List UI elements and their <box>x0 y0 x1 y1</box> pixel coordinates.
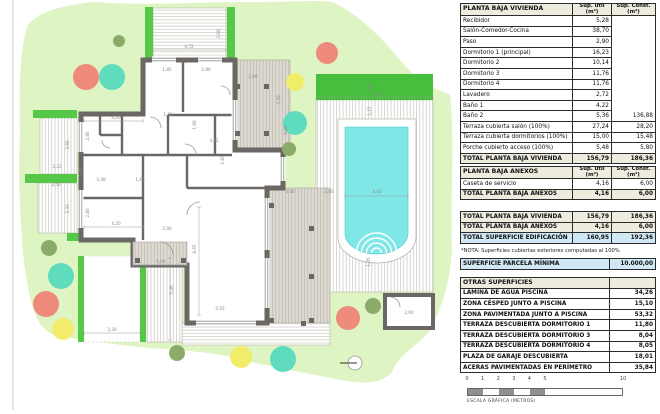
area-tables-panel: PLANTA BAJA VIVIENDASup. útil(m²)Sup. Co… <box>458 0 657 410</box>
row-label: Lavadero <box>461 90 573 101</box>
table-row: TERRAZA DESCUBIERTA DORMITORIO 111,80 <box>461 320 656 331</box>
area-table: PLANTA BAJA ANEXOSSup. útil(m²)Sup. Cons… <box>460 166 656 200</box>
dimension-label: 5,00 <box>156 259 166 264</box>
scale-bar <box>467 388 623 396</box>
scale-number: 10 <box>620 376 626 382</box>
sup-util-value: 5,36 <box>573 111 612 122</box>
row-label: Paso <box>461 37 573 48</box>
dimension-label: 4,20 <box>111 221 121 226</box>
tree-salmon <box>336 306 360 330</box>
area-value: 35,84 <box>610 362 656 373</box>
row-label: ACERAS PAVIMENTADAS EN PERÍMETRO <box>461 362 610 373</box>
dimension-label: 1,85 <box>162 67 172 72</box>
table-row: TERRAZA DESCUBIERTA DORMITORIO 48,05 <box>461 341 656 352</box>
total-const-value: 186,36 <box>612 153 656 164</box>
sup-util-value: 2,72 <box>573 90 612 101</box>
row-label: Caseta de servicio <box>461 179 573 190</box>
table-row: ZONA CÉSPED JUNTO A PISCINA15,10 <box>461 299 656 310</box>
area-value: 8,04 <box>610 330 656 341</box>
dimension-label: 1,60 <box>192 120 197 130</box>
table-row: TOTAL PLANTA BAJA ANEXOS4,166,00 <box>461 189 656 200</box>
total-util-value: 156,79 <box>573 212 612 223</box>
sup-util-value: 27,24 <box>573 122 612 133</box>
sup-const-value <box>612 100 656 111</box>
sup-const-value: 28,20 <box>612 122 656 133</box>
row-label: Baño 2 <box>461 111 573 122</box>
row-label: PLAZA DE GARAJE DESCUBIERTA <box>461 352 610 363</box>
scale-number: 1 <box>481 376 484 382</box>
total-const-value: 6,00 <box>612 222 656 233</box>
table-otras-superficies: OTRAS SUPERFICIESLÁMINA DE AGUA PISCINA3… <box>460 277 655 373</box>
dimension-label: 4,00 <box>372 189 382 194</box>
dimension-label: 3,00 <box>285 189 295 194</box>
hedge <box>227 7 235 60</box>
dimension-label: 3,62 <box>209 138 219 143</box>
total-label: TOTAL PLANTA BAJA ANEXOS <box>461 222 573 233</box>
table-row: Paso2,90 <box>461 37 656 48</box>
sup-util-value: 10,14 <box>573 58 612 69</box>
scale-number: 3 <box>512 376 515 382</box>
table-row: LÁMINA DE AGUA PISCINA34,26 <box>461 288 656 299</box>
table-planta-baja-vivienda: PLANTA BAJA VIVIENDASup. útil(m²)Sup. Co… <box>460 3 655 164</box>
total-const-value: 192,36 <box>612 233 656 244</box>
table-row: Porche cubierto acceso (100%)5,485,80 <box>461 143 656 154</box>
table-row: TOTAL SUPERFICIE EDIFICACIÓN160,95192,36 <box>461 233 656 244</box>
row-label: TERRAZA DESCUBIERTA DORMITORIO 1 <box>461 320 610 331</box>
sup-const-value <box>612 37 656 48</box>
table-planta-baja-anexos: PLANTA BAJA ANEXOSSup. útil(m²)Sup. Cons… <box>460 166 655 200</box>
sup-const-value <box>612 58 656 69</box>
table-totales: TOTAL PLANTA BAJA VIVIENDA156,79186,36TO… <box>460 211 655 244</box>
table-row: Dormitorio 1 (principal)16,23 <box>461 47 656 58</box>
sup-util-value: 38,70 <box>573 26 612 37</box>
dimension-label: 4,20 <box>111 115 121 120</box>
table-row: Caseta de servicio4,166,00 <box>461 179 656 190</box>
row-label: Dormitorio 3 <box>461 69 573 80</box>
dimension-label: 2,80 <box>85 131 90 141</box>
dimension-label: 2,00 <box>162 226 172 231</box>
table-row: Dormitorio 210,14 <box>461 58 656 69</box>
table-row: Baño 14,22 <box>461 100 656 111</box>
column-header: Sup. Const.(m²) <box>612 4 656 16</box>
row-label: TERRAZA DESCUBIERTA DORMITORIO 4 <box>461 341 610 352</box>
table-row: TOTAL PLANTA BAJA VIVIENDA156,79186,36 <box>461 212 656 223</box>
table-row: PLANTA BAJA ANEXOSSup. útil(m²)Sup. Cons… <box>461 167 656 179</box>
scale-bar-label: ESCALA GRÁFICA (METROS) <box>467 399 536 404</box>
total-label: TOTAL PLANTA BAJA VIVIENDA <box>461 153 573 164</box>
tree-olive <box>169 345 185 361</box>
dimension-label: 4,72 <box>184 44 194 49</box>
table-row: ACERAS PAVIMENTADAS EN PERÍMETRO35,84 <box>461 362 656 373</box>
sup-util-value: 15,00 <box>573 132 612 143</box>
sup-util-value: 4,16 <box>573 179 612 190</box>
sup-const-value: 15,48 <box>612 132 656 143</box>
sup-const-value <box>612 90 656 101</box>
sup-const-value: 6,00 <box>612 179 656 190</box>
table-title: OTRAS SUPERFICIES <box>461 278 610 289</box>
dimension-label: 2,98 <box>248 74 258 79</box>
parcela-value: 10.000,00 <box>610 259 656 270</box>
tree-yellow <box>286 73 304 91</box>
dimension-label: 4,70 <box>276 95 281 105</box>
table-row: Dormitorio 411,76 <box>461 79 656 90</box>
dimension-label: 8,65 <box>192 244 197 254</box>
scale-bar-numbers: 01234510 <box>467 376 637 384</box>
area-value: 34,26 <box>610 288 656 299</box>
sup-util-value: 4,22 <box>573 100 612 111</box>
tree-olive <box>113 35 125 47</box>
tree-olive <box>365 298 381 314</box>
table-row: Terraza cubierta dormitorios (100%)15,00… <box>461 132 656 143</box>
table-row: Salón-Comedor-Cocina38,70 <box>461 26 656 37</box>
dimension-label: 5,46 <box>169 285 174 295</box>
site-plan-drawing: 4,722,001,852,802,984,706,001,931,603,62… <box>0 0 455 410</box>
row-label: Salón-Comedor-Cocina <box>461 26 573 37</box>
dimension-label: 6,00 <box>283 125 288 135</box>
area-table: OTRAS SUPERFICIESLÁMINA DE AGUA PISCINA3… <box>460 277 656 373</box>
scale-number: 5 <box>543 376 546 382</box>
table-title: PLANTA BAJA VIVIENDA <box>461 4 573 16</box>
row-label: ZONA CÉSPED JUNTO A PISCINA <box>461 299 610 310</box>
area-value: 11,80 <box>610 320 656 331</box>
tree-olive <box>282 142 296 156</box>
column-header: Sup. útil(m²) <box>573 167 612 179</box>
dimension-label: 2,48 <box>96 177 106 182</box>
dimension-label: 1,93 <box>163 112 173 117</box>
area-table: TOTAL PLANTA BAJA VIVIENDA156,79186,36TO… <box>460 211 656 244</box>
total-util-value: 4,16 <box>573 222 612 233</box>
row-label: Terraza cubierta salón (100%) <box>461 122 573 133</box>
tree-salmon <box>73 64 99 90</box>
dimension-label: 1,70 <box>78 167 83 177</box>
dimension-label: 1,05 <box>366 257 371 267</box>
hedge <box>78 256 84 342</box>
area-table: PLANTA BAJA VIVIENDASup. útil(m²)Sup. Co… <box>460 3 656 164</box>
scale-segment <box>530 389 545 395</box>
sup-const-value <box>612 47 656 58</box>
sup-util-value: 16,23 <box>573 47 612 58</box>
tree-teal <box>270 346 296 372</box>
total-util-value: 4,16 <box>573 189 612 200</box>
row-label: LÁMINA DE AGUA PISCINA <box>461 288 610 299</box>
area-table: SUPERFICIE PARCELA MÍNIMA10.000,00 <box>460 258 656 270</box>
total-label: TOTAL PLANTA BAJA ANEXOS <box>461 189 573 200</box>
sup-util-value: 2,90 <box>573 37 612 48</box>
row-label: Dormitorio 1 (principal) <box>461 47 573 58</box>
note-text: *NOTA: Superficies cubiertas exteriores … <box>461 248 620 254</box>
column-header: Sup. Const.(m²) <box>612 167 656 179</box>
row-label: Dormitorio 2 <box>461 58 573 69</box>
table-row: Recibidor5,28 <box>461 16 656 27</box>
row-label: Dormitorio 4 <box>461 79 573 90</box>
hedge <box>33 110 77 118</box>
tree-teal <box>99 64 125 90</box>
column-header <box>610 278 656 289</box>
area-value: 18,01 <box>610 352 656 363</box>
dimension-label: 7,64 <box>373 92 383 97</box>
table-row: ZONA PAVIMENTADA JUNTO A PISCINA53,32 <box>461 309 656 320</box>
scale-number: 4 <box>528 376 531 382</box>
dimension-label: 2,60 <box>404 310 414 315</box>
site-plan: 4,722,001,852,802,984,706,001,931,603,62… <box>0 0 455 410</box>
sup-util-value: 5,48 <box>573 143 612 154</box>
row-label: TERRAZA DESCUBIERTA DORMITORIO 3 <box>461 330 610 341</box>
area-value: 8,05 <box>610 341 656 352</box>
scale-segment <box>483 389 498 395</box>
table-parcela-minima: SUPERFICIE PARCELA MÍNIMA10.000,00 <box>460 258 655 270</box>
table-row: Baño 25,36136,88 <box>461 111 656 122</box>
dimension-label: 2,50 <box>51 182 61 187</box>
column-header: Sup. útil(m²) <box>573 4 612 16</box>
dimension-label: 1,60 <box>135 177 145 182</box>
dimension-label: 3,60 <box>65 140 70 150</box>
row-label: Porche cubierto acceso (100%) <box>461 143 573 154</box>
parcela-label: SUPERFICIE PARCELA MÍNIMA <box>461 259 610 270</box>
table-row: TOTAL PLANTA BAJA ANEXOS4,166,00 <box>461 222 656 233</box>
table-row: Terraza cubierta salón (100%)27,2428,20 <box>461 122 656 133</box>
dimension-label: 2,00 <box>216 29 221 39</box>
table-row: OTRAS SUPERFICIES <box>461 278 656 289</box>
row-label: Terraza cubierta dormitorios (100%) <box>461 132 573 143</box>
total-util-value: 160,95 <box>573 233 612 244</box>
dimension-label: 3,30 <box>107 327 117 332</box>
dimension-label: 2,85 <box>220 155 225 165</box>
scale-number: 2 <box>497 376 500 382</box>
area-value: 15,10 <box>610 299 656 310</box>
table-row: TOTAL PLANTA BAJA VIVIENDA156,79186,36 <box>461 153 656 164</box>
sup-const-value <box>612 16 656 27</box>
dimension-label: 2,00 <box>367 83 372 93</box>
total-label: TOTAL PLANTA BAJA VIVIENDA <box>461 212 573 223</box>
sup-const-value: 5,80 <box>612 143 656 154</box>
tree-salmon <box>316 42 338 64</box>
row-label: ZONA PAVIMENTADA JUNTO A PISCINA <box>461 309 610 320</box>
scale-number: 0 <box>465 376 468 382</box>
dimension-label: 2,80 <box>201 67 211 72</box>
sup-util-value: 5,28 <box>573 16 612 27</box>
sup-const-value <box>612 79 656 90</box>
row-label: Baño 1 <box>461 100 573 111</box>
tree-teal <box>48 263 74 289</box>
hedge <box>145 7 153 60</box>
table-row: SUPERFICIE PARCELA MÍNIMA10.000,00 <box>461 259 656 270</box>
table-row: TERRAZA DESCUBIERTA DORMITORIO 38,04 <box>461 330 656 341</box>
table-title: PLANTA BAJA ANEXOS <box>461 167 573 179</box>
table-row: PLAZA DE GARAJE DESCUBIERTA18,01 <box>461 352 656 363</box>
dimension-label: 3,33 <box>65 204 70 214</box>
tree-yellow <box>52 318 74 340</box>
dimension-label: 1,15 <box>367 106 372 116</box>
tree-olive <box>41 240 57 256</box>
table-row: PLANTA BAJA VIVIENDASup. útil(m²)Sup. Co… <box>461 4 656 16</box>
architectural-plan-sheet: { "colors": { "lawn": "#def4c2", "hedge"… <box>0 0 660 410</box>
sup-util-value: 11,76 <box>573 79 612 90</box>
sup-util-value: 11,76 <box>573 69 612 80</box>
scale-segment <box>499 389 514 395</box>
scale-segment <box>545 389 622 395</box>
total-label: TOTAL SUPERFICIE EDIFICACIÓN <box>461 233 573 244</box>
table-row: Dormitorio 311,76 <box>461 69 656 80</box>
dimension-label: 5,65 <box>215 306 225 311</box>
dimension-label: 2,80 <box>85 208 90 218</box>
sup-const-value <box>612 26 656 37</box>
sup-const-value <box>612 69 656 80</box>
scale-segment <box>514 389 529 395</box>
total-util-value: 156,79 <box>573 153 612 164</box>
area-value: 53,32 <box>610 309 656 320</box>
sup-const-value: 136,88 <box>612 111 656 122</box>
total-const-value: 6,00 <box>612 189 656 200</box>
dimension-label: 2,22 <box>52 164 62 169</box>
tree-salmon <box>33 291 59 317</box>
total-const-value: 186,36 <box>612 212 656 223</box>
hedge <box>140 267 146 342</box>
table-row: Lavadero2,72 <box>461 90 656 101</box>
dimension-label: 2,00 <box>324 189 334 194</box>
tree-yellow <box>230 346 252 368</box>
scale-segment <box>468 389 483 395</box>
row-label: Recibidor <box>461 16 573 27</box>
